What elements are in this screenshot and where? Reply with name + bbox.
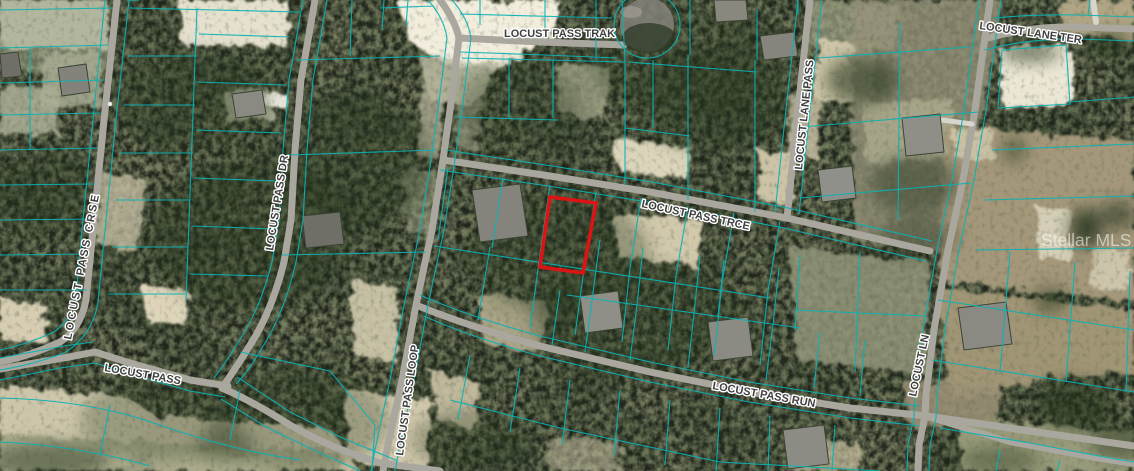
svg-text:LOCUST PASS TRAK: LOCUST PASS TRAK	[504, 28, 615, 40]
svg-text:Stellar MLS: Stellar MLS	[1041, 230, 1131, 250]
